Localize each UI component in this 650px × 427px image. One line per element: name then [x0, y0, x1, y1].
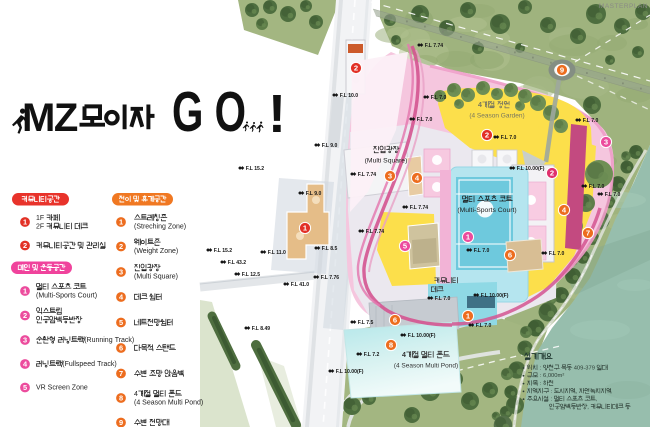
- svg-text:F.L 41.0: F.L 41.0: [291, 282, 309, 288]
- svg-text:4: 4: [402, 352, 406, 359]
- svg-text:4: 4: [478, 102, 482, 109]
- svg-text:F.L 8.49: F.L 8.49: [252, 326, 270, 332]
- svg-text:9: 9: [560, 66, 564, 75]
- svg-text:(Fullspeed: (Fullspeed: [62, 361, 95, 368]
- svg-text:8: 8: [389, 341, 393, 350]
- svg-text:2: 2: [119, 242, 123, 251]
- svg-text:F.L 7.0: F.L 7.0: [474, 248, 490, 254]
- svg-text:F.L 7.0: F.L 7.0: [417, 117, 433, 123]
- svg-text:3: 3: [604, 138, 608, 147]
- svg-text:(Streching Zone): (Streching Zone): [134, 224, 186, 231]
- svg-text:Track): Track): [97, 361, 117, 368]
- svg-text:F.L 9.0: F.L 9.0: [322, 143, 338, 149]
- svg-text:F.L 7.0: F.L 7.0: [583, 118, 599, 124]
- svg-text:6,000m²: 6,000m²: [543, 373, 564, 379]
- svg-text:1: 1: [119, 218, 123, 227]
- svg-text:3: 3: [23, 336, 27, 345]
- svg-text:(4 Season Multi Pond): (4 Season Multi Pond): [134, 400, 203, 407]
- svg-text:G O: G O: [172, 80, 246, 144]
- svg-text:2: 2: [485, 131, 489, 140]
- svg-text:F.L 10.00(F): F.L 10.00(F): [517, 166, 545, 172]
- svg-text:1: 1: [23, 287, 27, 296]
- svg-text:F.L 8.5: F.L 8.5: [322, 246, 338, 252]
- svg-text:7: 7: [119, 369, 123, 378]
- svg-text:F.L 7.0: F.L 7.0: [435, 296, 451, 302]
- svg-text:3: 3: [119, 268, 123, 277]
- svg-text:9: 9: [119, 418, 123, 427]
- svg-text:2: 2: [23, 241, 27, 250]
- svg-text:F.L 43.2: F.L 43.2: [228, 260, 246, 266]
- svg-text:F.L 10.00(F): F.L 10.00(F): [408, 333, 436, 339]
- svg-text:F.L 11.0: F.L 11.0: [268, 250, 286, 256]
- svg-text:(Multi-Sports Court): (Multi-Sports Court): [36, 293, 97, 300]
- svg-text:F.L 7.2: F.L 7.2: [364, 352, 380, 358]
- svg-text:F.L 7.5: F.L 7.5: [358, 320, 374, 326]
- svg-text:F.L 15.2: F.L 15.2: [246, 166, 264, 172]
- svg-text:2: 2: [550, 169, 554, 178]
- svg-text:F.L 7.0: F.L 7.0: [605, 192, 621, 198]
- svg-text:2: 2: [354, 64, 358, 73]
- svg-text:6: 6: [119, 344, 123, 353]
- svg-text:F.L 10.00(F): F.L 10.00(F): [481, 293, 509, 299]
- svg-text:MASTERPLAN: MASTERPLAN: [599, 3, 648, 10]
- svg-text:F.L 10.0: F.L 10.0: [340, 93, 358, 99]
- svg-text:(Multi-Sports Court): (Multi-Sports Court): [457, 207, 516, 214]
- svg-text:F.L 7.0: F.L 7.0: [501, 135, 517, 141]
- svg-text:(4 Season Garden): (4 Season Garden): [469, 113, 524, 120]
- svg-text:(Multi Square): (Multi Square): [134, 274, 178, 281]
- svg-text:F.L 7.74: F.L 7.74: [366, 229, 384, 235]
- svg-text:F.L 10.00(F): F.L 10.00(F): [336, 369, 364, 375]
- svg-text:F.L 7.0: F.L 7.0: [431, 95, 447, 101]
- svg-text:5: 5: [23, 383, 27, 392]
- svg-text:Track): Track): [115, 337, 135, 344]
- svg-text:F.L 15.2: F.L 15.2: [214, 248, 232, 254]
- svg-text:(Running: (Running: [84, 337, 113, 344]
- svg-text:!: !: [268, 84, 286, 144]
- svg-text:F.L 7.74: F.L 7.74: [425, 43, 443, 49]
- svg-text:F.L 7.76: F.L 7.76: [321, 275, 339, 281]
- svg-text:F.L 7.0: F.L 7.0: [549, 251, 565, 257]
- svg-text:7: 7: [586, 229, 590, 238]
- svg-text:4: 4: [134, 391, 138, 398]
- svg-text:8: 8: [119, 394, 123, 403]
- svg-text:3: 3: [388, 172, 392, 181]
- svg-text:(Multi Square): (Multi Square): [365, 158, 408, 165]
- svg-text:F.L 7.0: F.L 7.0: [589, 184, 605, 190]
- svg-text:5: 5: [119, 318, 123, 327]
- svg-text:VR Screen Zone: VR Screen Zone: [36, 385, 88, 392]
- svg-text:(Weight Zone): (Weight Zone): [134, 248, 178, 255]
- svg-text:6: 6: [393, 316, 397, 325]
- svg-text:F.L 7.74: F.L 7.74: [410, 205, 428, 211]
- svg-text:F.L 9.0: F.L 9.0: [306, 191, 322, 197]
- svg-text:1F: 1F: [36, 215, 44, 222]
- svg-text:F.L 12.5: F.L 12.5: [242, 272, 260, 278]
- svg-text:(4 Season Multi Pond): (4 Season Multi Pond): [394, 363, 458, 370]
- svg-text:2F: 2F: [36, 224, 44, 231]
- svg-text:6: 6: [508, 251, 512, 260]
- svg-text:MZ: MZ: [22, 96, 78, 140]
- svg-text:F.L 7.74: F.L 7.74: [358, 172, 376, 178]
- svg-text:2: 2: [23, 311, 27, 320]
- svg-text:F.L 7.0: F.L 7.0: [476, 323, 492, 329]
- svg-text:409-379: 409-379: [574, 365, 595, 371]
- svg-text:1: 1: [23, 218, 27, 227]
